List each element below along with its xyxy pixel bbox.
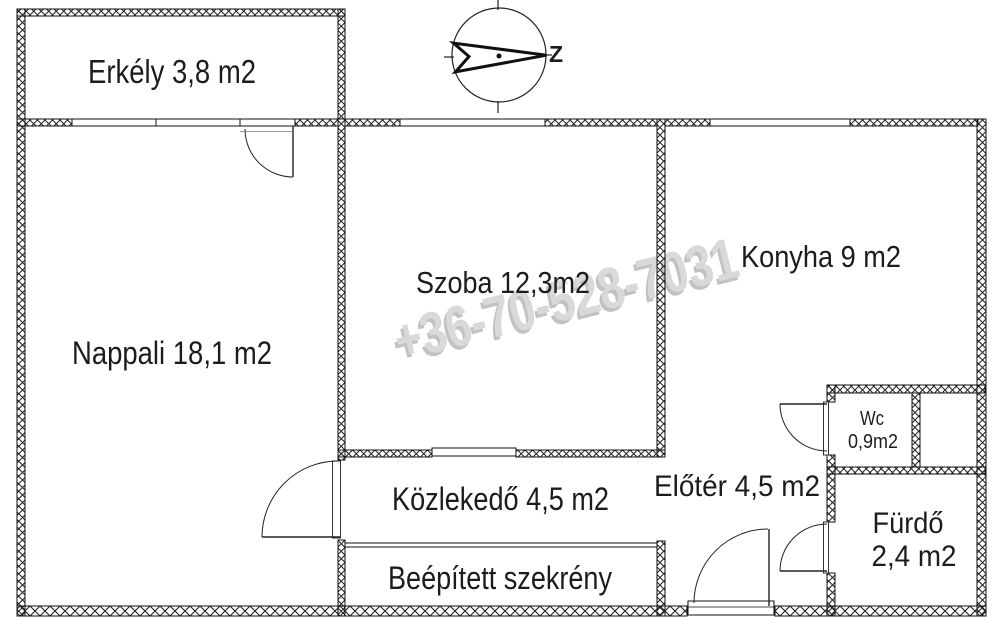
svg-text:Erkély 3,8 m2: Erkély 3,8 m2 bbox=[88, 53, 256, 90]
svg-text:Előtér 4,5 m2: Előtér 4,5 m2 bbox=[654, 470, 820, 503]
svg-text:Konyha 9 m2: Konyha 9 m2 bbox=[741, 239, 901, 274]
svg-text:Nappali 18,1 m2: Nappali 18,1 m2 bbox=[72, 335, 272, 371]
svg-text:Z: Z bbox=[549, 41, 563, 67]
svg-text:Közlekedő 4,5 m2: Közlekedő 4,5 m2 bbox=[392, 481, 609, 517]
svg-text:0,9m2: 0,9m2 bbox=[848, 431, 898, 453]
svg-text:Wc: Wc bbox=[860, 408, 884, 430]
svg-text:Fürdő: Fürdő bbox=[873, 507, 944, 540]
svg-text:Szoba 12,3m2: Szoba 12,3m2 bbox=[416, 265, 590, 300]
svg-text:2,4 m2: 2,4 m2 bbox=[872, 540, 957, 573]
svg-text:Beépített szekrény: Beépített szekrény bbox=[388, 560, 612, 596]
